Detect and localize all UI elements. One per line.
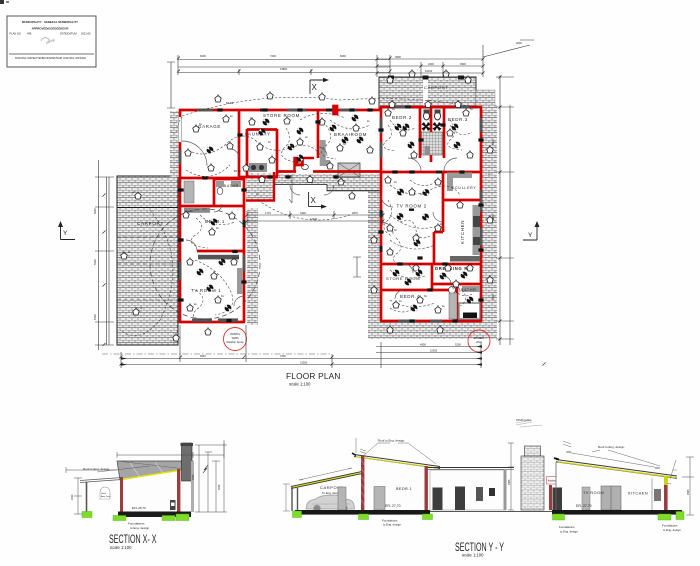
svg-text:6300: 6300 xyxy=(491,294,495,300)
svg-text:Roof to Eng. design: Roof to Eng. design xyxy=(83,467,110,471)
svg-text:2200: 2200 xyxy=(428,62,434,66)
svg-text:7200: 7200 xyxy=(280,354,286,358)
svg-text:150x50 purlins: 150x50 purlins xyxy=(516,419,532,422)
svg-text:21300: 21300 xyxy=(300,361,308,365)
svg-text:MUNICIPALITY - SENEKAL MUNICI: MUNICIPALITY - SENEKAL MUNICIPALITY xyxy=(22,20,78,24)
svg-text:3A: 3A xyxy=(392,108,395,111)
svg-text:STORE ROOM: STORE ROOM xyxy=(263,113,300,118)
svg-text:10300: 10300 xyxy=(430,349,438,353)
svg-text:CARPORT: CARPORT xyxy=(137,221,164,226)
svg-text:2700: 2700 xyxy=(192,474,195,480)
svg-text:BEDR.2: BEDR.2 xyxy=(392,115,412,120)
svg-text:BRAAIROOM: BRAAIROOM xyxy=(334,132,367,137)
svg-text:3900: 3900 xyxy=(395,55,401,59)
svg-text:6500: 6500 xyxy=(491,139,495,145)
svg-text:3A: 3A xyxy=(199,123,202,126)
svg-text:7200: 7200 xyxy=(270,54,276,58)
svg-text:5200: 5200 xyxy=(455,343,461,347)
svg-text:2021-06: 2021-06 xyxy=(81,32,91,36)
svg-text:X: X xyxy=(311,196,317,205)
svg-text:TV ROOM: TV ROOM xyxy=(583,491,604,495)
svg-text:WORKS: WORKS xyxy=(230,332,240,336)
svg-text:KITCHEN: KITCHEN xyxy=(460,220,465,244)
svg-text:4900: 4900 xyxy=(93,208,97,214)
svg-text:KITCHEN: KITCHEN xyxy=(628,492,648,496)
svg-text:SPA: SPA xyxy=(464,314,470,318)
svg-text:SCULLERY: SCULLERY xyxy=(452,186,477,190)
svg-text:3A: 3A xyxy=(221,295,224,298)
svg-text:3900: 3900 xyxy=(460,62,466,66)
svg-text:TV ROOM 1: TV ROOM 1 xyxy=(191,288,221,293)
svg-text:4900: 4900 xyxy=(420,343,426,347)
svg-text:5300: 5300 xyxy=(93,259,97,265)
svg-text:to Eng. design: to Eng. design xyxy=(663,528,681,532)
svg-text:Foundations: Foundations xyxy=(559,525,575,529)
svg-text:W280: W280 xyxy=(232,336,239,340)
svg-text:APPROVED/GOEDGEKEUR: APPROVED/GOEDGEKEUR xyxy=(32,27,69,31)
svg-text:Steel: Steel xyxy=(101,492,106,495)
svg-text:2565: 2565 xyxy=(508,479,511,485)
svg-text:Foundations: Foundations xyxy=(662,524,678,528)
svg-text:4000: 4000 xyxy=(516,41,522,45)
svg-text:3A: 3A xyxy=(394,229,397,232)
svg-text:12640: 12640 xyxy=(310,217,318,221)
svg-text:BEDR.1: BEDR.1 xyxy=(396,487,412,491)
svg-text:BEDR.4: BEDR.4 xyxy=(400,294,420,299)
svg-text:2021: 2021 xyxy=(476,340,482,344)
svg-text:2400: 2400 xyxy=(71,494,74,500)
svg-text:BATHR: BATHR xyxy=(224,184,239,188)
svg-text:1770: 1770 xyxy=(265,211,271,215)
svg-text:DATE/DATUM: DATE/DATUM xyxy=(60,32,76,36)
svg-text:to Eng. design: to Eng. design xyxy=(130,526,150,530)
svg-text:scale 1:100: scale 1:100 xyxy=(462,553,484,558)
svg-text:3A: 3A xyxy=(236,257,239,260)
svg-text:to Eng. design: to Eng. design xyxy=(383,523,401,527)
svg-text:6000: 6000 xyxy=(200,54,206,58)
svg-text:Awn Tank: Awn Tank xyxy=(101,495,111,498)
svg-text:6600: 6600 xyxy=(340,54,346,58)
svg-text:8600: 8600 xyxy=(491,214,495,220)
svg-text:2565: 2565 xyxy=(687,489,690,495)
svg-text:Foundations: Foundations xyxy=(128,522,145,526)
svg-text:EFL 27,70: EFL 27,70 xyxy=(576,504,592,508)
svg-text:LAUNDRY: LAUNDRY xyxy=(245,132,271,137)
svg-text:3A: 3A xyxy=(343,143,346,146)
svg-text:sp.1: sp.1 xyxy=(338,179,343,183)
svg-text:3A: 3A xyxy=(420,193,423,196)
svg-text:EFL 27,70: EFL 27,70 xyxy=(385,504,401,508)
svg-text:scale 1:100: scale 1:100 xyxy=(110,545,132,550)
svg-text:PASSED: PASSED xyxy=(474,336,484,340)
svg-text:X: X xyxy=(312,83,318,92)
svg-text:19800: 19800 xyxy=(280,67,288,71)
svg-text:Weather Spray: Weather Spray xyxy=(226,340,244,344)
svg-text:FLOOR PLAN: FLOOR PLAN xyxy=(286,371,341,381)
svg-text:scale 1:100: scale 1:100 xyxy=(289,382,311,387)
svg-text:Y: Y xyxy=(63,230,68,237)
svg-text:3A: 3A xyxy=(452,263,455,266)
svg-text:EFL 25,70: EFL 25,70 xyxy=(132,506,146,510)
svg-text:BUILDING INSPECTOR/BOUINSPEKTE: BUILDING INSPECTOR/BOUINSPEKTEUR CONTROL… xyxy=(15,57,86,60)
svg-text:BATHR.: BATHR. xyxy=(461,288,478,292)
svg-text:B1 b2: B1 b2 xyxy=(234,169,241,173)
svg-text:4870: 4870 xyxy=(352,211,358,215)
svg-text:TV ROOM 2: TV ROOM 2 xyxy=(397,204,427,209)
svg-text:6640: 6640 xyxy=(200,354,206,358)
svg-text:CARPORT: CARPORT xyxy=(424,85,448,90)
svg-text:Roof to Eng. design: Roof to Eng. design xyxy=(378,439,405,443)
svg-text:498: 498 xyxy=(27,32,32,36)
svg-text:PLAN NO: PLAN NO xyxy=(10,32,21,36)
svg-text:Roof to Eng. design: Roof to Eng. design xyxy=(598,445,625,449)
svg-text:4400: 4400 xyxy=(300,211,306,215)
svg-text:10100: 10100 xyxy=(425,69,433,73)
svg-text:3A: 3A xyxy=(470,108,473,111)
svg-text:B1 B2: B1 B2 xyxy=(226,101,234,105)
svg-text:3A: 3A xyxy=(296,161,299,164)
svg-text:6100: 6100 xyxy=(93,314,97,320)
svg-text:Y: Y xyxy=(528,232,533,239)
svg-text:3A: 3A xyxy=(190,210,193,213)
svg-text:3435: 3435 xyxy=(218,484,221,490)
svg-text:3A: 3A xyxy=(268,141,271,144)
svg-text:3A: 3A xyxy=(424,295,427,298)
svg-text:to Eng. design: to Eng. design xyxy=(560,530,578,534)
